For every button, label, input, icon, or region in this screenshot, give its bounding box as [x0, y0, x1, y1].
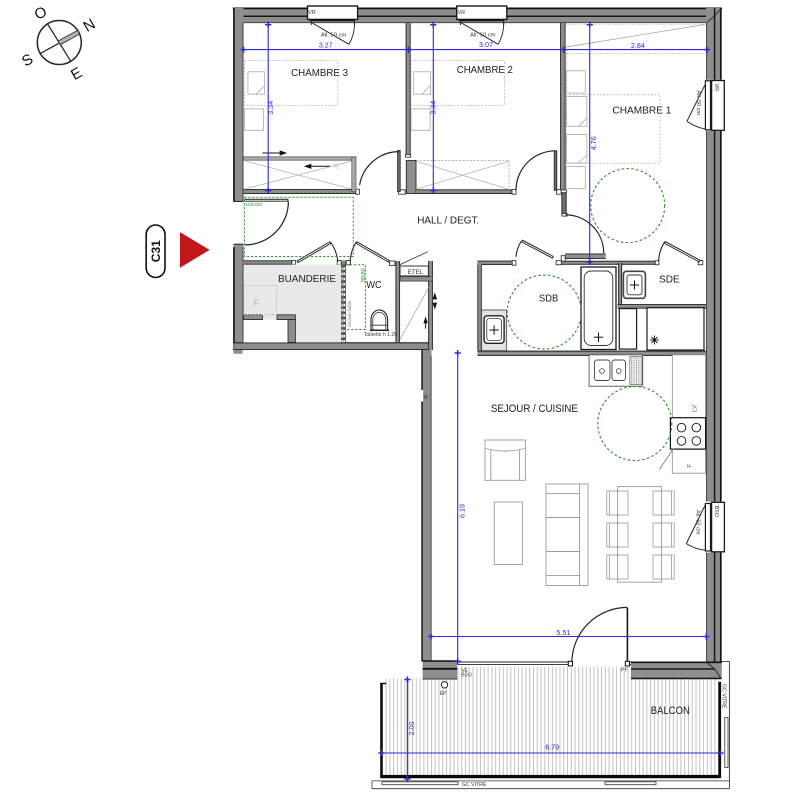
svg-text:VR: VR	[308, 10, 316, 16]
svg-text:SEJOUR / CUISINE: SEJOUR / CUISINE	[491, 403, 578, 415]
svg-text:Cloison faible: Cloison faible	[347, 300, 352, 327]
svg-text:PL: PL	[334, 165, 340, 171]
svg-text:3.07: 3.07	[479, 40, 493, 49]
svg-text:CHAMBRE 2: CHAMBRE 2	[457, 64, 513, 76]
svg-text:6.79: 6.79	[545, 743, 559, 752]
svg-text:EP: EP	[440, 691, 447, 697]
svg-text:BSO: BSO	[461, 672, 472, 678]
svg-text:3.34: 3.34	[266, 101, 275, 115]
svg-text:BSO: BSO	[713, 506, 719, 517]
svg-text:SDE: SDE	[659, 274, 680, 286]
svg-text:CHAMBRE 1: CHAMBRE 1	[612, 105, 671, 117]
svg-text:VR: VR	[458, 10, 466, 16]
svg-text:LV: LV	[692, 404, 699, 412]
svg-text:Tablette h 1.20: Tablette h 1.20	[364, 332, 398, 338]
svg-text:All. 50 cm: All. 50 cm	[695, 510, 701, 535]
svg-text:BALCON: BALCON	[651, 705, 690, 717]
svg-text:PF: PF	[621, 667, 629, 673]
svg-text:All. 50 cm: All. 50 cm	[695, 91, 701, 116]
svg-text:2.00: 2.00	[407, 722, 416, 736]
svg-text:WC: WC	[366, 279, 382, 291]
svg-text:F: F	[254, 298, 260, 308]
svg-text:ETEL: ETEL	[408, 269, 424, 276]
svg-text:2.84: 2.84	[631, 41, 645, 50]
svg-text:F: F	[687, 464, 694, 468]
svg-text:GC VITRE: GC VITRE	[721, 684, 727, 709]
svg-text:5.51: 5.51	[556, 628, 570, 637]
svg-text:120/220: 120/220	[246, 202, 263, 207]
svg-text:4.76: 4.76	[589, 136, 598, 150]
svg-text:All. 50 cm: All. 50 cm	[470, 33, 496, 39]
svg-text:VR: VR	[713, 84, 719, 92]
svg-text:HALL / DEGT.: HALL / DEGT.	[417, 215, 479, 227]
svg-text:3.27: 3.27	[319, 40, 333, 49]
svg-text:3.34: 3.34	[429, 101, 438, 115]
svg-text:6.19: 6.19	[458, 504, 467, 518]
svg-text:All. 50 cm: All. 50 cm	[321, 33, 347, 39]
svg-text:C31: C31	[149, 240, 163, 262]
svg-text:SDB: SDB	[539, 293, 558, 305]
svg-text:80/80: 80/80	[361, 268, 367, 282]
svg-text:BUANDERIE: BUANDERIE	[278, 273, 336, 285]
svg-text:GC VITRE: GC VITRE	[462, 782, 487, 788]
svg-text:CHAMBRE 3: CHAMBRE 3	[291, 67, 348, 79]
